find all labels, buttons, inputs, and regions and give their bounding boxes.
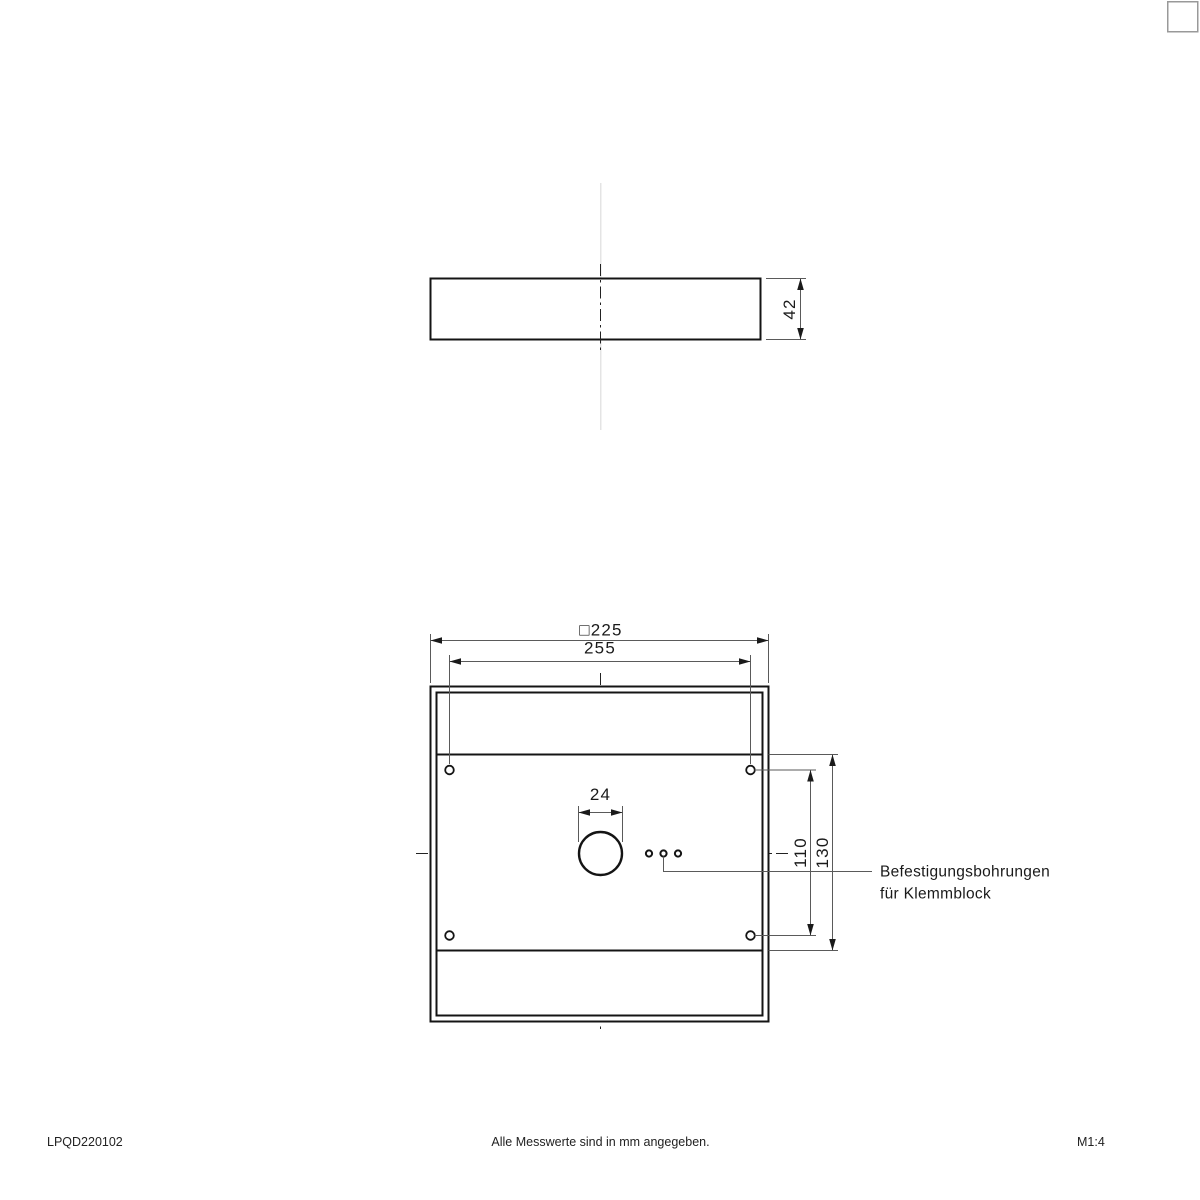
dimension-42: 42 <box>766 279 806 340</box>
mounting-hole <box>445 766 454 775</box>
mounting-hole <box>445 931 454 940</box>
mounting-hole <box>746 931 755 940</box>
document-number: LPQD220102 <box>47 1135 123 1149</box>
scale-label: M1:4 <box>1077 1135 1105 1149</box>
side-view: 42 <box>431 183 807 430</box>
dimension-label-130: 130 <box>813 837 832 869</box>
clamp-block-hole <box>646 850 652 856</box>
clamp-block-hole <box>675 850 681 856</box>
mounting-hole <box>746 766 755 775</box>
side-view-body <box>431 279 761 340</box>
dimension-label-42: 42 <box>780 298 799 319</box>
technical-drawing-canvas: 42 □225 <box>0 0 1200 1200</box>
callout-text-line2: für Klemmblock <box>880 886 991 903</box>
plan-view: □225 255 24 110 130 <box>416 621 1050 1033</box>
dimension-label-24: 24 <box>590 785 611 804</box>
page-format-icon <box>1168 2 1198 32</box>
callout-text-line1: Befestigungsbohrungen <box>880 864 1050 881</box>
dimension-label-255: 255 <box>584 639 616 658</box>
footer: LPQD220102 Alle Messwerte sind in mm ang… <box>47 1135 1105 1149</box>
dimension-label-225: □225 <box>579 621 622 640</box>
plan-view-outer-body <box>431 687 769 1022</box>
clamp-block-hole <box>660 850 666 856</box>
dimension-label-110: 110 <box>791 837 810 868</box>
units-note: Alle Messwerte sind in mm angegeben. <box>491 1135 709 1149</box>
drawing-svg: 42 □225 <box>0 0 1200 1200</box>
